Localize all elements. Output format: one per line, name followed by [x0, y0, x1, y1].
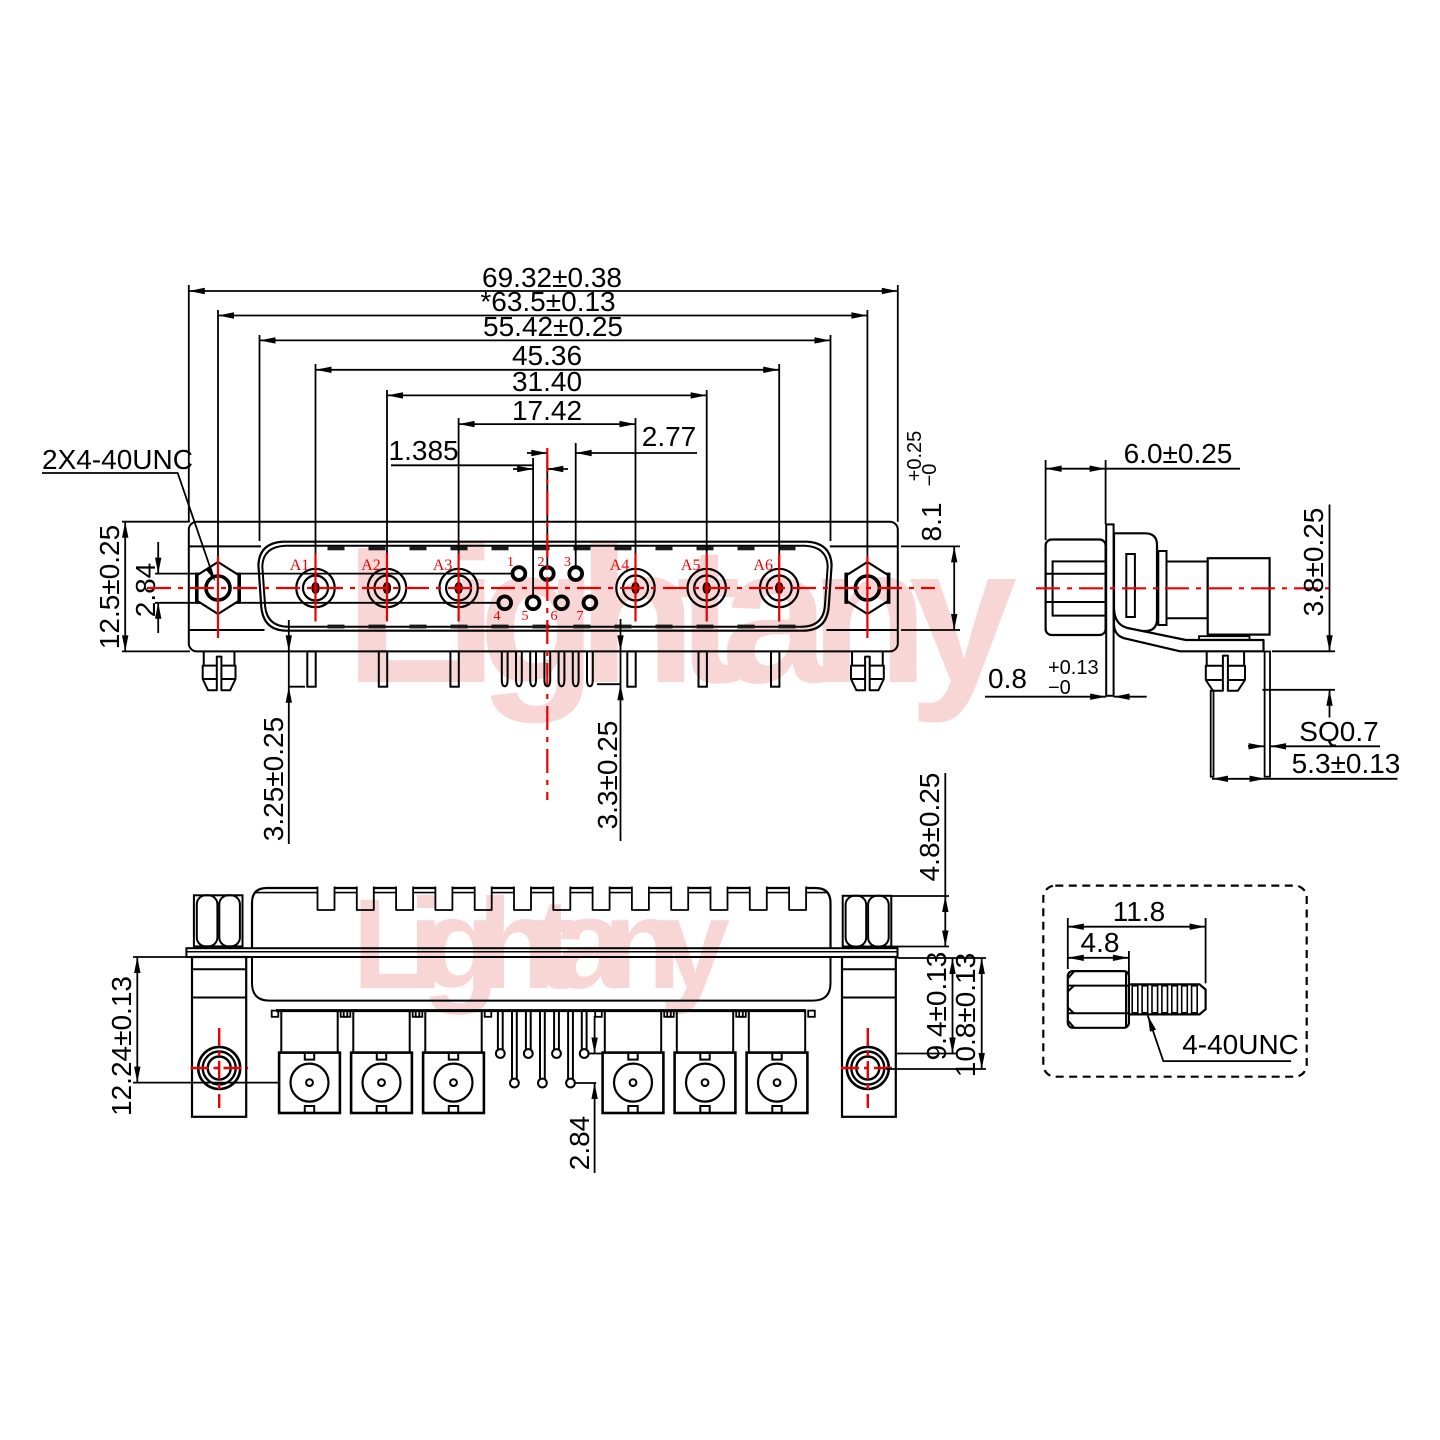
- svg-text:2.84: 2.84: [564, 1116, 595, 1171]
- svg-text:5.3±0.13: 5.3±0.13: [1292, 748, 1401, 779]
- svg-text:11.8: 11.8: [1113, 896, 1165, 927]
- svg-text:A1: A1: [290, 557, 310, 574]
- svg-text:1.385: 1.385: [389, 435, 459, 466]
- svg-text:Lightany: Lightany: [352, 873, 730, 1016]
- svg-text:SQ0.7: SQ0.7: [1299, 716, 1378, 747]
- svg-text:4.8±0.25: 4.8±0.25: [914, 773, 945, 882]
- svg-text:2X4-40UNC: 2X4-40UNC: [42, 444, 193, 475]
- svg-text:4.8: 4.8: [1081, 927, 1120, 958]
- svg-text:4-40UNC: 4-40UNC: [1182, 1029, 1299, 1060]
- svg-text:9.4±0.13: 9.4±0.13: [921, 952, 952, 1061]
- svg-text:31.40: 31.40: [512, 366, 582, 397]
- svg-text:−0: −0: [1048, 677, 1071, 699]
- svg-text:3.3±0.25: 3.3±0.25: [592, 721, 623, 830]
- svg-text:2.77: 2.77: [642, 421, 697, 452]
- svg-text:10.8±0.13: 10.8±0.13: [950, 953, 981, 1077]
- svg-text:12.5±0.25: 12.5±0.25: [94, 525, 125, 649]
- svg-text:12.24±0.13: 12.24±0.13: [106, 976, 137, 1116]
- svg-text:+0.25: +0.25: [904, 431, 926, 482]
- svg-text:+0.13: +0.13: [1048, 657, 1099, 679]
- svg-text:6.0±0.25: 6.0±0.25: [1124, 438, 1233, 469]
- svg-text:17.42: 17.42: [512, 395, 582, 426]
- svg-text:55.42±0.25: 55.42±0.25: [483, 311, 623, 342]
- svg-text:Lightany: Lightany: [345, 506, 1017, 724]
- svg-text:3.25±0.25: 3.25±0.25: [258, 717, 289, 841]
- svg-text:3.8±0.25: 3.8±0.25: [1298, 508, 1329, 617]
- svg-text:2.84: 2.84: [130, 563, 161, 618]
